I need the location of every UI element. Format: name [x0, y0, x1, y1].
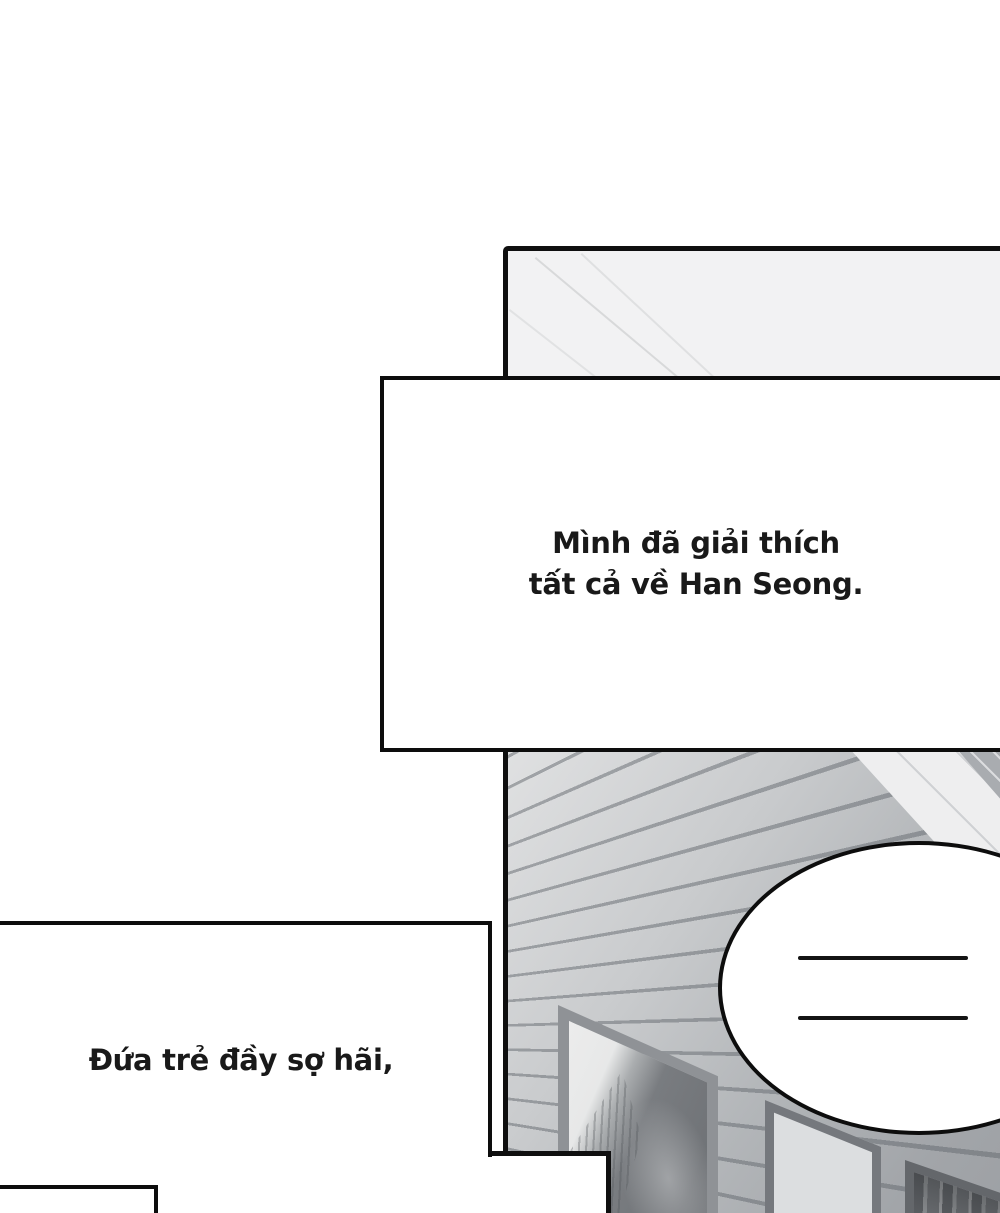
redacted-speech-line-2	[798, 1016, 968, 1020]
speech-line-2: tất cả về Han Seong.	[529, 564, 863, 605]
panel-border	[503, 747, 508, 1153]
speech-text: Mình đã giải thích tất cả về Han Seong.	[529, 523, 863, 604]
narration-box: Đứa trẻ đầy sợ hãi,	[0, 921, 492, 1157]
speech-box: Mình đã giải thích tất cả về Han Seong.	[380, 376, 1000, 752]
panel-notch	[486, 1151, 611, 1213]
redacted-speech-line-1	[798, 956, 968, 960]
picture-frame-small	[905, 1160, 1000, 1213]
wall-crease-line	[535, 257, 697, 381]
next-panel-edge	[0, 1185, 158, 1213]
comic-page: Mình đã giải thích tất cả về Han Seong. …	[0, 0, 1000, 1213]
narration-text: Đứa trẻ đầy sợ hãi,	[89, 1043, 394, 1077]
speech-line-1: Mình đã giải thích	[529, 523, 863, 564]
top-panel	[503, 246, 1000, 381]
wall-crease-line	[509, 309, 613, 381]
